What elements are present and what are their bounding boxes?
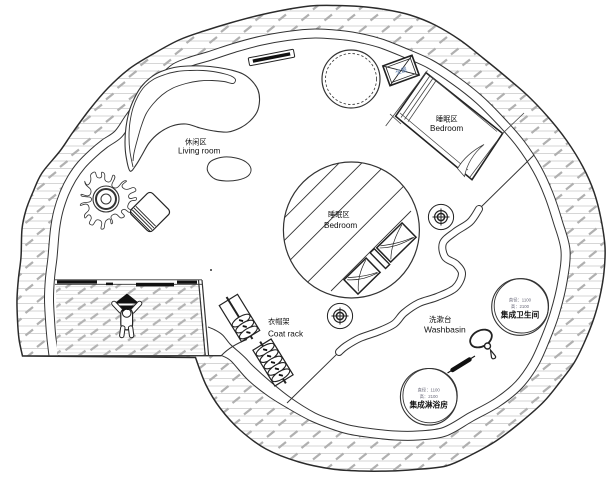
svg-text:Bedroom: Bedroom <box>324 221 357 230</box>
svg-text:休闲区: 休闲区 <box>185 138 207 147</box>
svg-text:衣帽架: 衣帽架 <box>268 317 290 326</box>
svg-text:睡眠区: 睡眠区 <box>328 210 350 219</box>
svg-text:高：2100: 高：2100 <box>511 303 530 310</box>
svg-text:直径：1100: 直径：1100 <box>509 297 532 303</box>
svg-text:睡眠区: 睡眠区 <box>436 115 458 124</box>
svg-text:Washbasin: Washbasin <box>424 325 466 335</box>
svg-text:集成淋浴房: 集成淋浴房 <box>408 399 448 409</box>
svg-text:洗漱台: 洗漱台 <box>429 314 452 324</box>
svg-text:高：2100: 高：2100 <box>420 393 439 400</box>
svg-text:Coat rack: Coat rack <box>268 330 304 339</box>
svg-text:Living room: Living room <box>178 147 221 156</box>
svg-text:集成卫生间: 集成卫生间 <box>500 310 540 320</box>
svg-text:Bedroom: Bedroom <box>430 124 463 133</box>
svg-text:直径：1100: 直径：1100 <box>418 386 441 392</box>
